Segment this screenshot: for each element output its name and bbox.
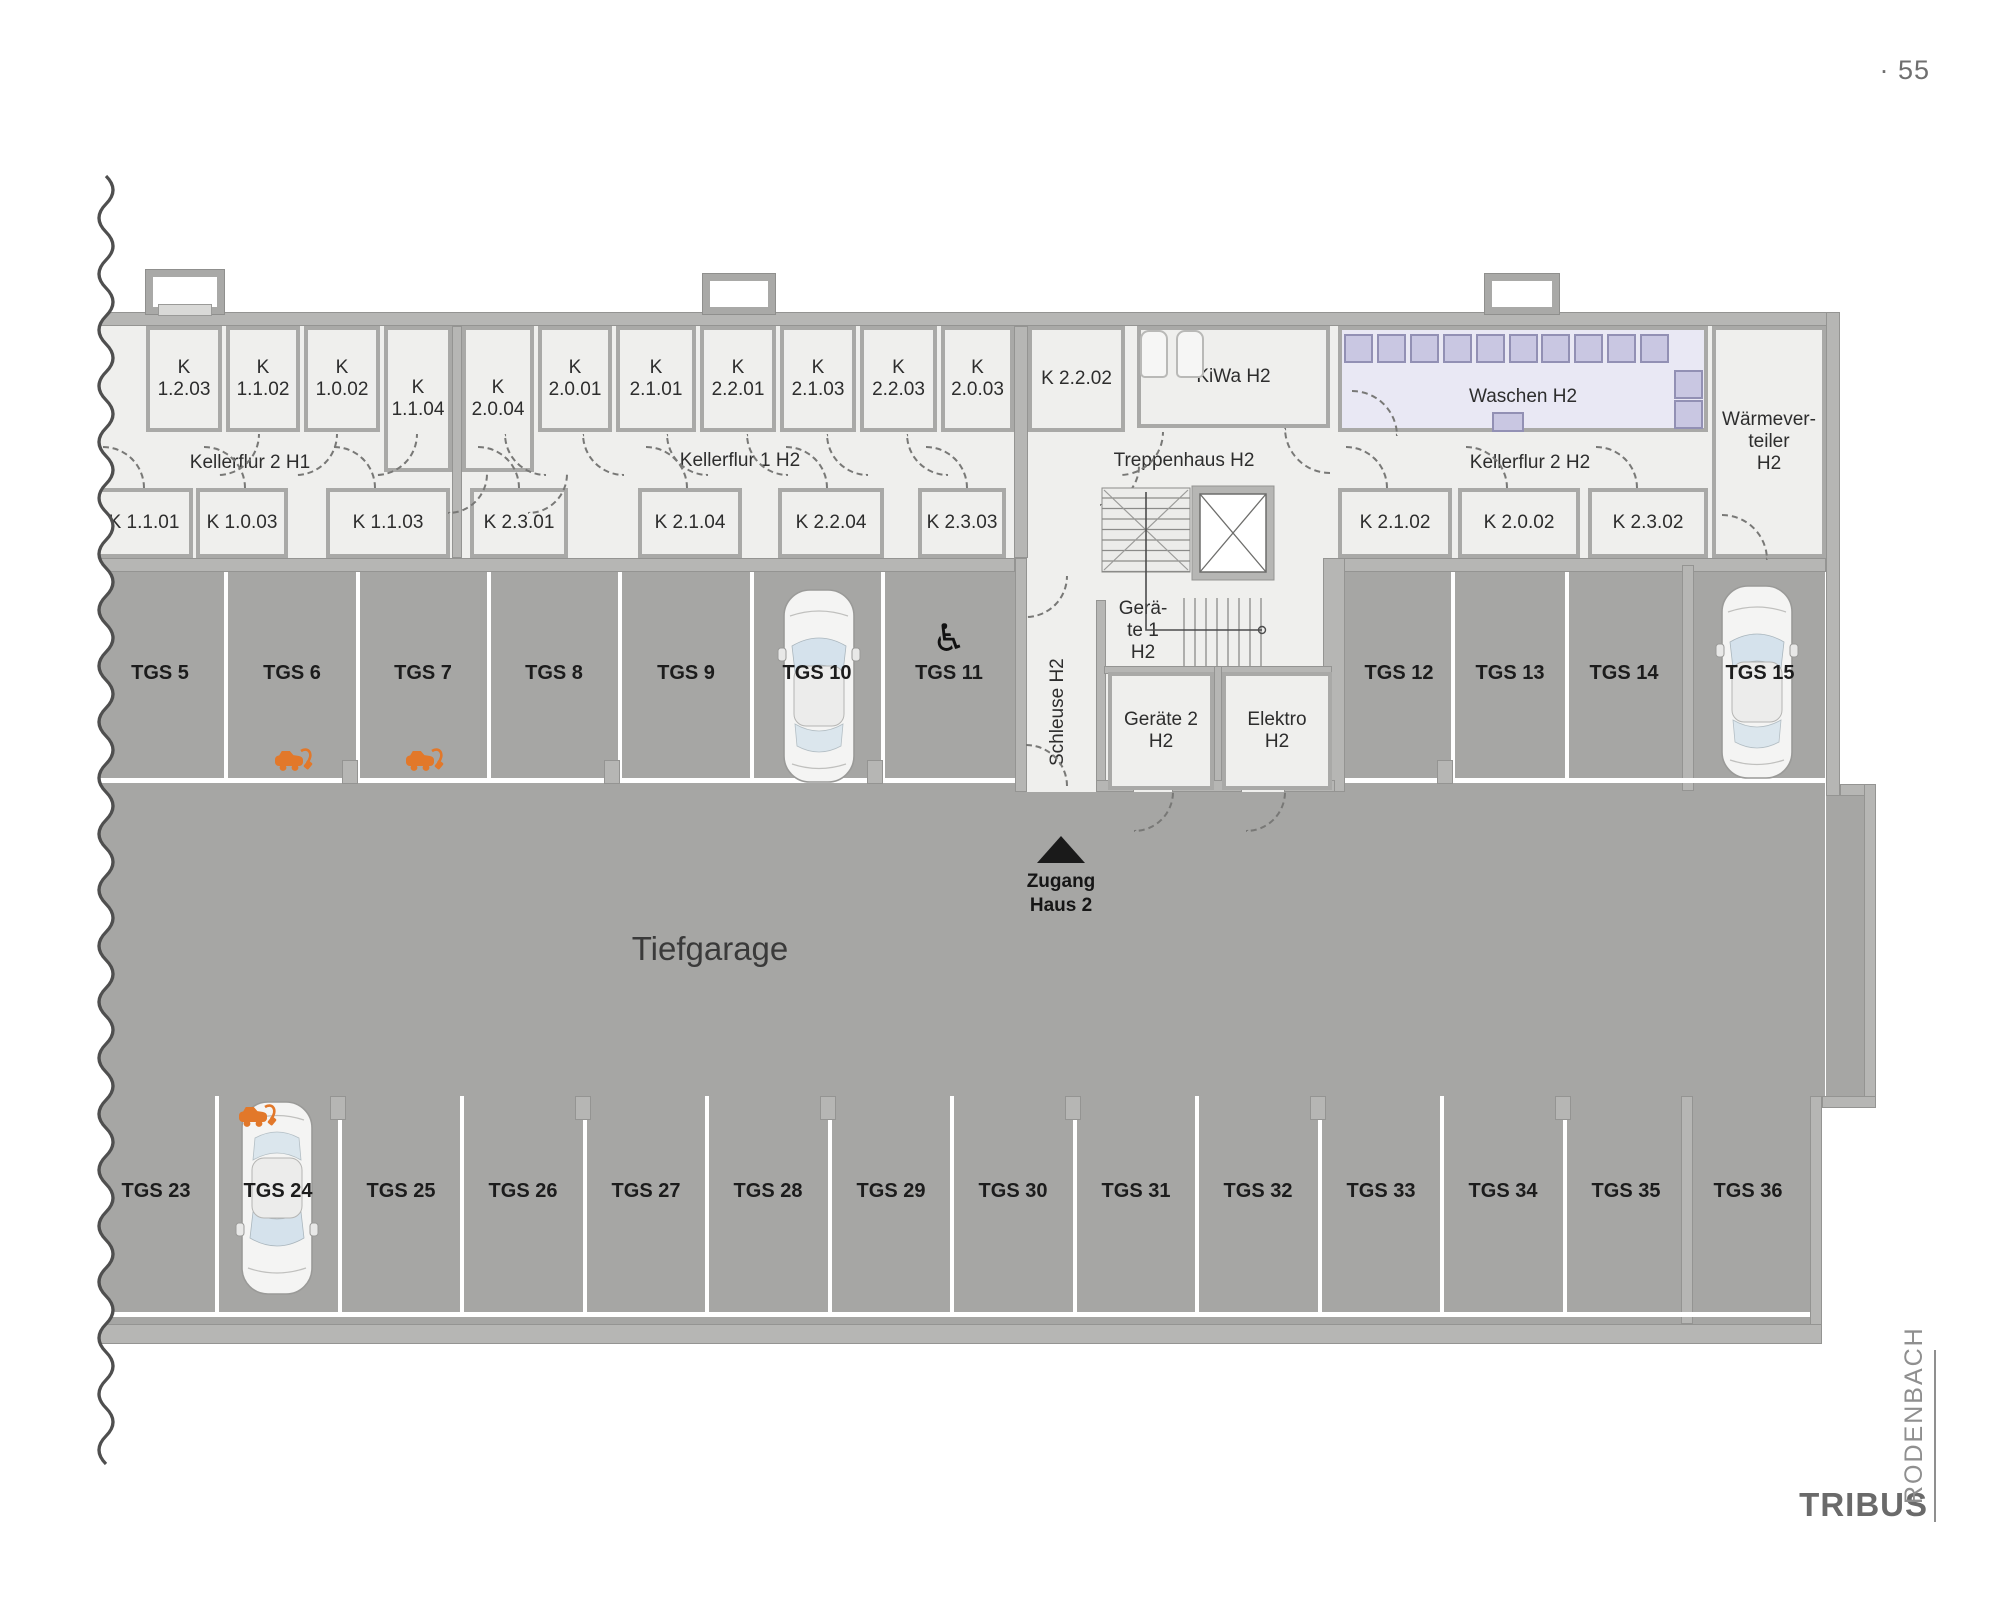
page-number: · 55	[1790, 55, 1930, 86]
ev-charging-icon	[275, 750, 313, 771]
entrance-arrow-icon	[1037, 836, 1085, 863]
parking-spot-label-tgs-26: TGS 26	[489, 1180, 558, 1203]
parking-spot-label-tgs-35: TGS 35	[1592, 1180, 1661, 1203]
ev-charging-icon	[406, 750, 444, 771]
parking-spot-label-tgs-28: TGS 28	[734, 1180, 803, 1203]
elevator	[1192, 486, 1274, 580]
parking-spot-label-tgs-13: TGS 13	[1476, 662, 1545, 685]
parking-spot-label-tgs-25: TGS 25	[367, 1180, 436, 1203]
access-label-line2: Haus 2	[1001, 894, 1121, 918]
parking-spot-label-tgs-31: TGS 31	[1102, 1180, 1171, 1203]
parking-spot-label-tgs-32: TGS 32	[1224, 1180, 1293, 1203]
logo-divider	[1934, 1350, 1936, 1522]
parking-spot-label-tgs-29: TGS 29	[857, 1180, 926, 1203]
parking-spot-label-tgs-27: TGS 27	[612, 1180, 681, 1203]
parking-spot-label-tgs-24: TGS 24	[244, 1180, 313, 1203]
parking-spot-label-tgs-7: TGS 7	[394, 662, 452, 685]
parking-spot-label-tgs-23: TGS 23	[122, 1180, 191, 1203]
parking-spot-label-tgs-15: TGS 15	[1726, 662, 1795, 685]
parking-spot-label-tgs-6: TGS 6	[263, 662, 321, 685]
parking-spot-label-tgs-14: TGS 14	[1590, 662, 1659, 685]
parking-spot-label-tgs-33: TGS 33	[1347, 1180, 1416, 1203]
wheelchair-icon: ♿	[932, 616, 966, 660]
parking-spot-label-tgs-9: TGS 9	[657, 662, 715, 685]
parking-spot-label-tgs-34: TGS 34	[1469, 1180, 1538, 1203]
parking-spot-label-tgs-36: TGS 36	[1714, 1180, 1783, 1203]
cut-line	[0, 176, 113, 1464]
access-label: Zugang Haus 2	[1001, 870, 1121, 918]
garage-area-label: Tiefgarage	[560, 930, 860, 968]
access-label-line1: Zugang	[1001, 870, 1121, 894]
parking-spot-label-tgs-10: TGS 10	[783, 662, 852, 685]
parking-spot-label-tgs-5: TGS 5	[131, 662, 189, 685]
plan-graphics-overlay	[0, 0, 2008, 1606]
parking-spot-label-tgs-30: TGS 30	[979, 1180, 1048, 1203]
floor-plan-page: · 55 Tiefgarage Zugang Haus 2 TRIBUS ROD…	[0, 0, 2008, 1606]
parking-spot-label-tgs-12: TGS 12	[1365, 662, 1434, 685]
logo-secondary: RODENBACH	[1900, 1346, 1929, 1504]
parking-spot-label-tgs-11: TGS 11	[915, 662, 983, 685]
parking-spot-label-tgs-8: TGS 8	[525, 662, 583, 685]
car-top-view	[778, 590, 860, 782]
